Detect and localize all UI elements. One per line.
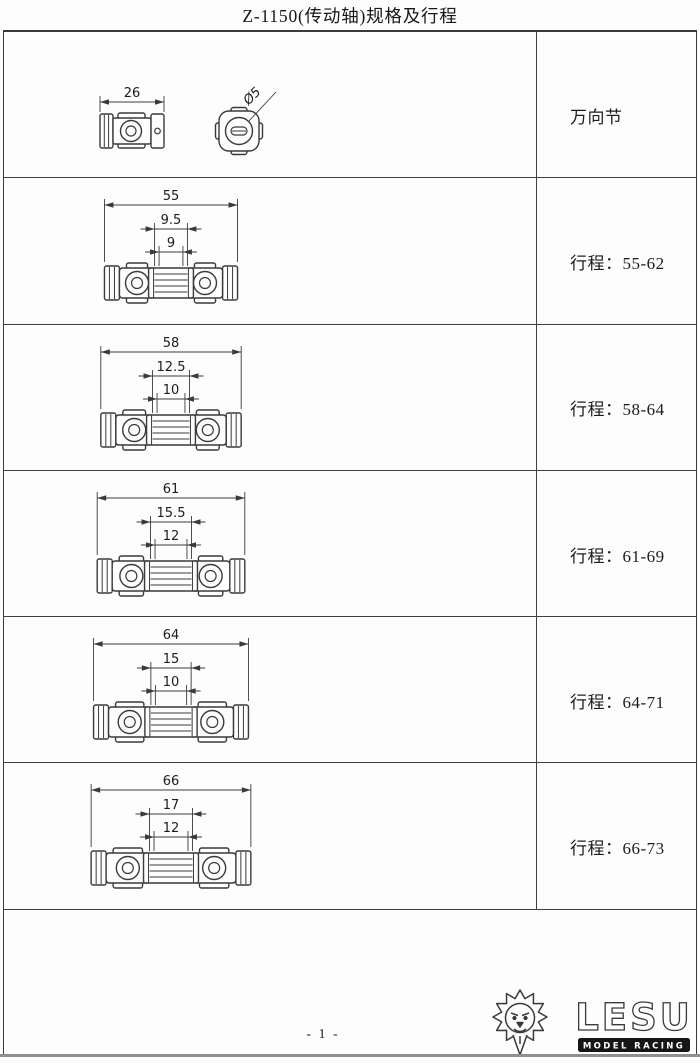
lion-icon bbox=[493, 990, 547, 1055]
dimension-label: 58 bbox=[163, 336, 180, 351]
table-row: 559.59行程：55-62 bbox=[4, 178, 696, 324]
dimension-label: 55 bbox=[163, 189, 180, 204]
lesu-logo: LESUMODEL RACING bbox=[488, 988, 696, 1058]
page-bottom-edge bbox=[0, 1054, 700, 1057]
shaft-graphic: 6115.512 bbox=[97, 482, 245, 596]
dimension-label: 9.5 bbox=[161, 213, 182, 228]
dimension-label: 12 bbox=[163, 821, 180, 836]
brand-text: LESU bbox=[575, 996, 693, 1039]
dimension-label: 26 bbox=[124, 86, 141, 101]
row-label: 行程：61-69 bbox=[570, 542, 665, 567]
table-row: 6115.512行程：61-69 bbox=[4, 471, 696, 617]
drawing-cell: 641510 bbox=[4, 617, 537, 762]
label-cell: 万向节 bbox=[537, 32, 696, 177]
row-label: 行程：55-62 bbox=[570, 249, 665, 274]
shaft-drawing: 559.59 bbox=[4, 178, 536, 324]
table-row: 26Ø5万向节 bbox=[4, 32, 696, 178]
dimension-label: 64 bbox=[163, 628, 180, 643]
row-label: 行程：66-73 bbox=[570, 834, 665, 859]
row-label: 行程：64-71 bbox=[570, 688, 665, 713]
drawing-cell: 26Ø5 bbox=[4, 32, 537, 177]
joint-drawing: 26Ø5 bbox=[4, 32, 536, 178]
shaft-graphic: 661712 bbox=[91, 774, 251, 888]
brand-subtitle: MODEL RACING bbox=[583, 1042, 685, 1052]
label-cell: 行程：64-71 bbox=[537, 617, 696, 762]
row-label: 万向节 bbox=[570, 103, 623, 128]
shaft-graphic: 5812.510 bbox=[101, 336, 241, 450]
drawing-cell: 559.59 bbox=[4, 178, 537, 323]
joint-graphic: 26Ø5 bbox=[100, 85, 276, 155]
dimension-label: 12.5 bbox=[157, 360, 186, 375]
shaft-drawing: 5812.510 bbox=[4, 325, 536, 471]
table-row: 641510行程：64-71 bbox=[4, 617, 696, 763]
drawing-cell: 661712 bbox=[4, 763, 537, 908]
dimension-label: 12 bbox=[163, 529, 180, 544]
label-cell: 行程：55-62 bbox=[537, 178, 696, 323]
dimension-label: 17 bbox=[163, 798, 180, 813]
shaft-graphic: 641510 bbox=[94, 628, 249, 742]
label-cell: 行程：61-69 bbox=[537, 471, 696, 616]
dimension-label: 15.5 bbox=[157, 506, 186, 521]
spec-table: 26Ø5万向节559.59行程：55-625812.510行程：58-64611… bbox=[3, 30, 697, 1054]
table-row: 5812.510行程：58-64 bbox=[4, 325, 696, 471]
shaft-drawing: 641510 bbox=[4, 617, 536, 763]
label-cell: 行程：66-73 bbox=[537, 763, 696, 908]
dimension-label: 10 bbox=[163, 675, 180, 690]
row-label: 行程：58-64 bbox=[570, 395, 665, 420]
shaft-drawing: 661712 bbox=[4, 763, 536, 909]
drawing-cell: 6115.512 bbox=[4, 471, 537, 616]
shaft-graphic: 559.59 bbox=[104, 189, 237, 303]
table-row: 661712行程：66-73 bbox=[4, 763, 696, 909]
dimension-label: 66 bbox=[163, 774, 180, 789]
shaft-drawing: 6115.512 bbox=[4, 471, 536, 617]
lesu-logo-graphic: LESUMODEL RACING bbox=[488, 988, 696, 1058]
page: Z-1150(传动轴)规格及行程 26Ø5万向节559.59行程：55-6258… bbox=[0, 0, 700, 1063]
page-title: Z-1150(传动轴)规格及行程 bbox=[0, 3, 700, 28]
dimension-label: Ø5 bbox=[240, 85, 264, 109]
drawing-cell: 5812.510 bbox=[4, 325, 537, 470]
dimension-label: 61 bbox=[163, 482, 180, 497]
label-cell: 行程：58-64 bbox=[537, 325, 696, 470]
dimension-label: 15 bbox=[163, 652, 180, 667]
dimension-label: 9 bbox=[167, 236, 175, 251]
dimension-label: 10 bbox=[163, 383, 180, 398]
